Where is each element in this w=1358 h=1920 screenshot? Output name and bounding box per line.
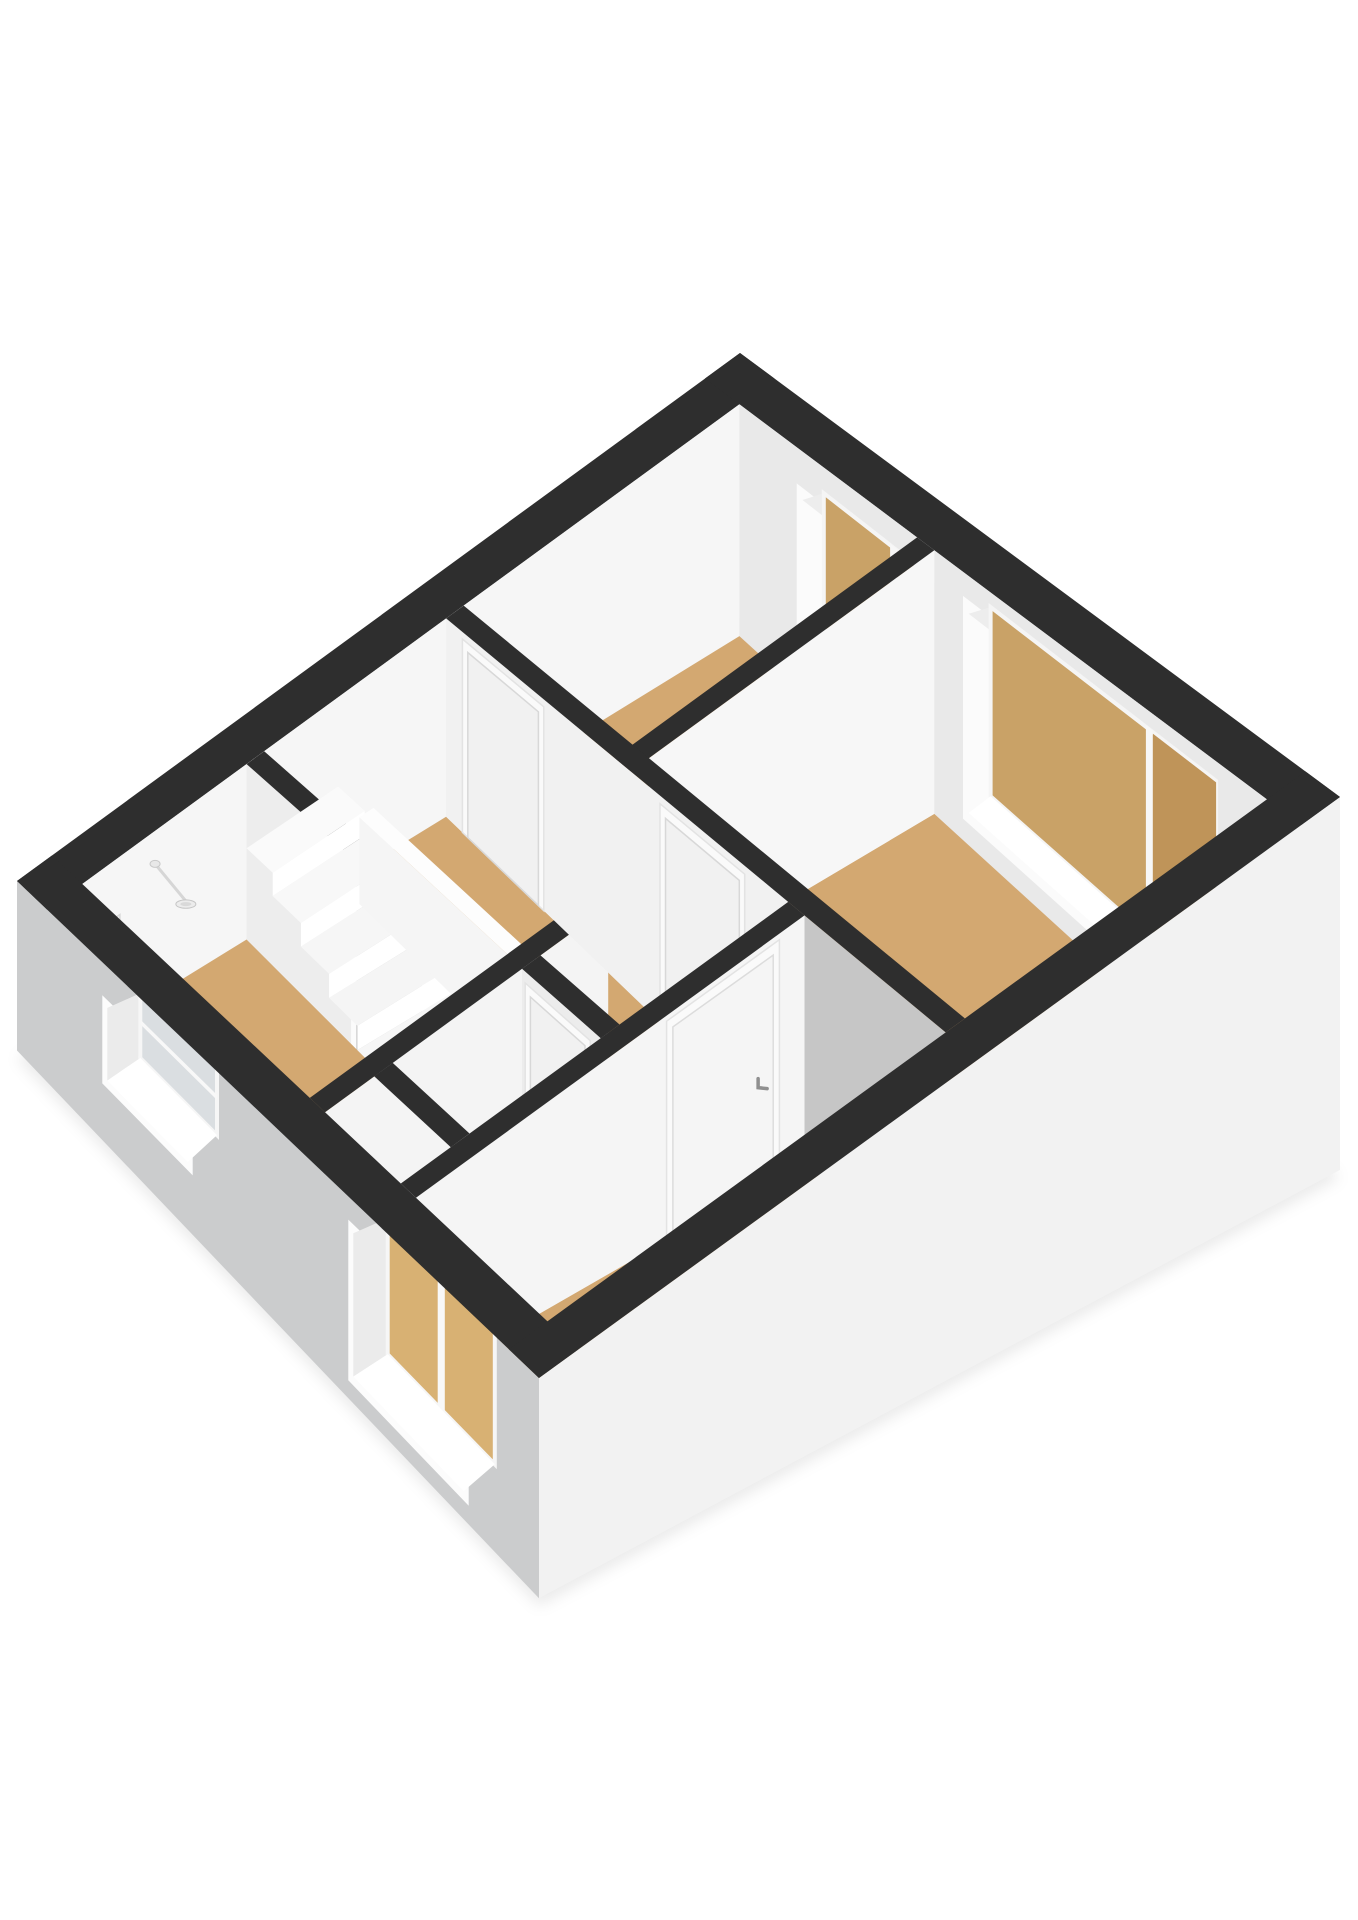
floorplan-canvas bbox=[0, 0, 1358, 1920]
floorplan-3d-render bbox=[0, 0, 1358, 1920]
